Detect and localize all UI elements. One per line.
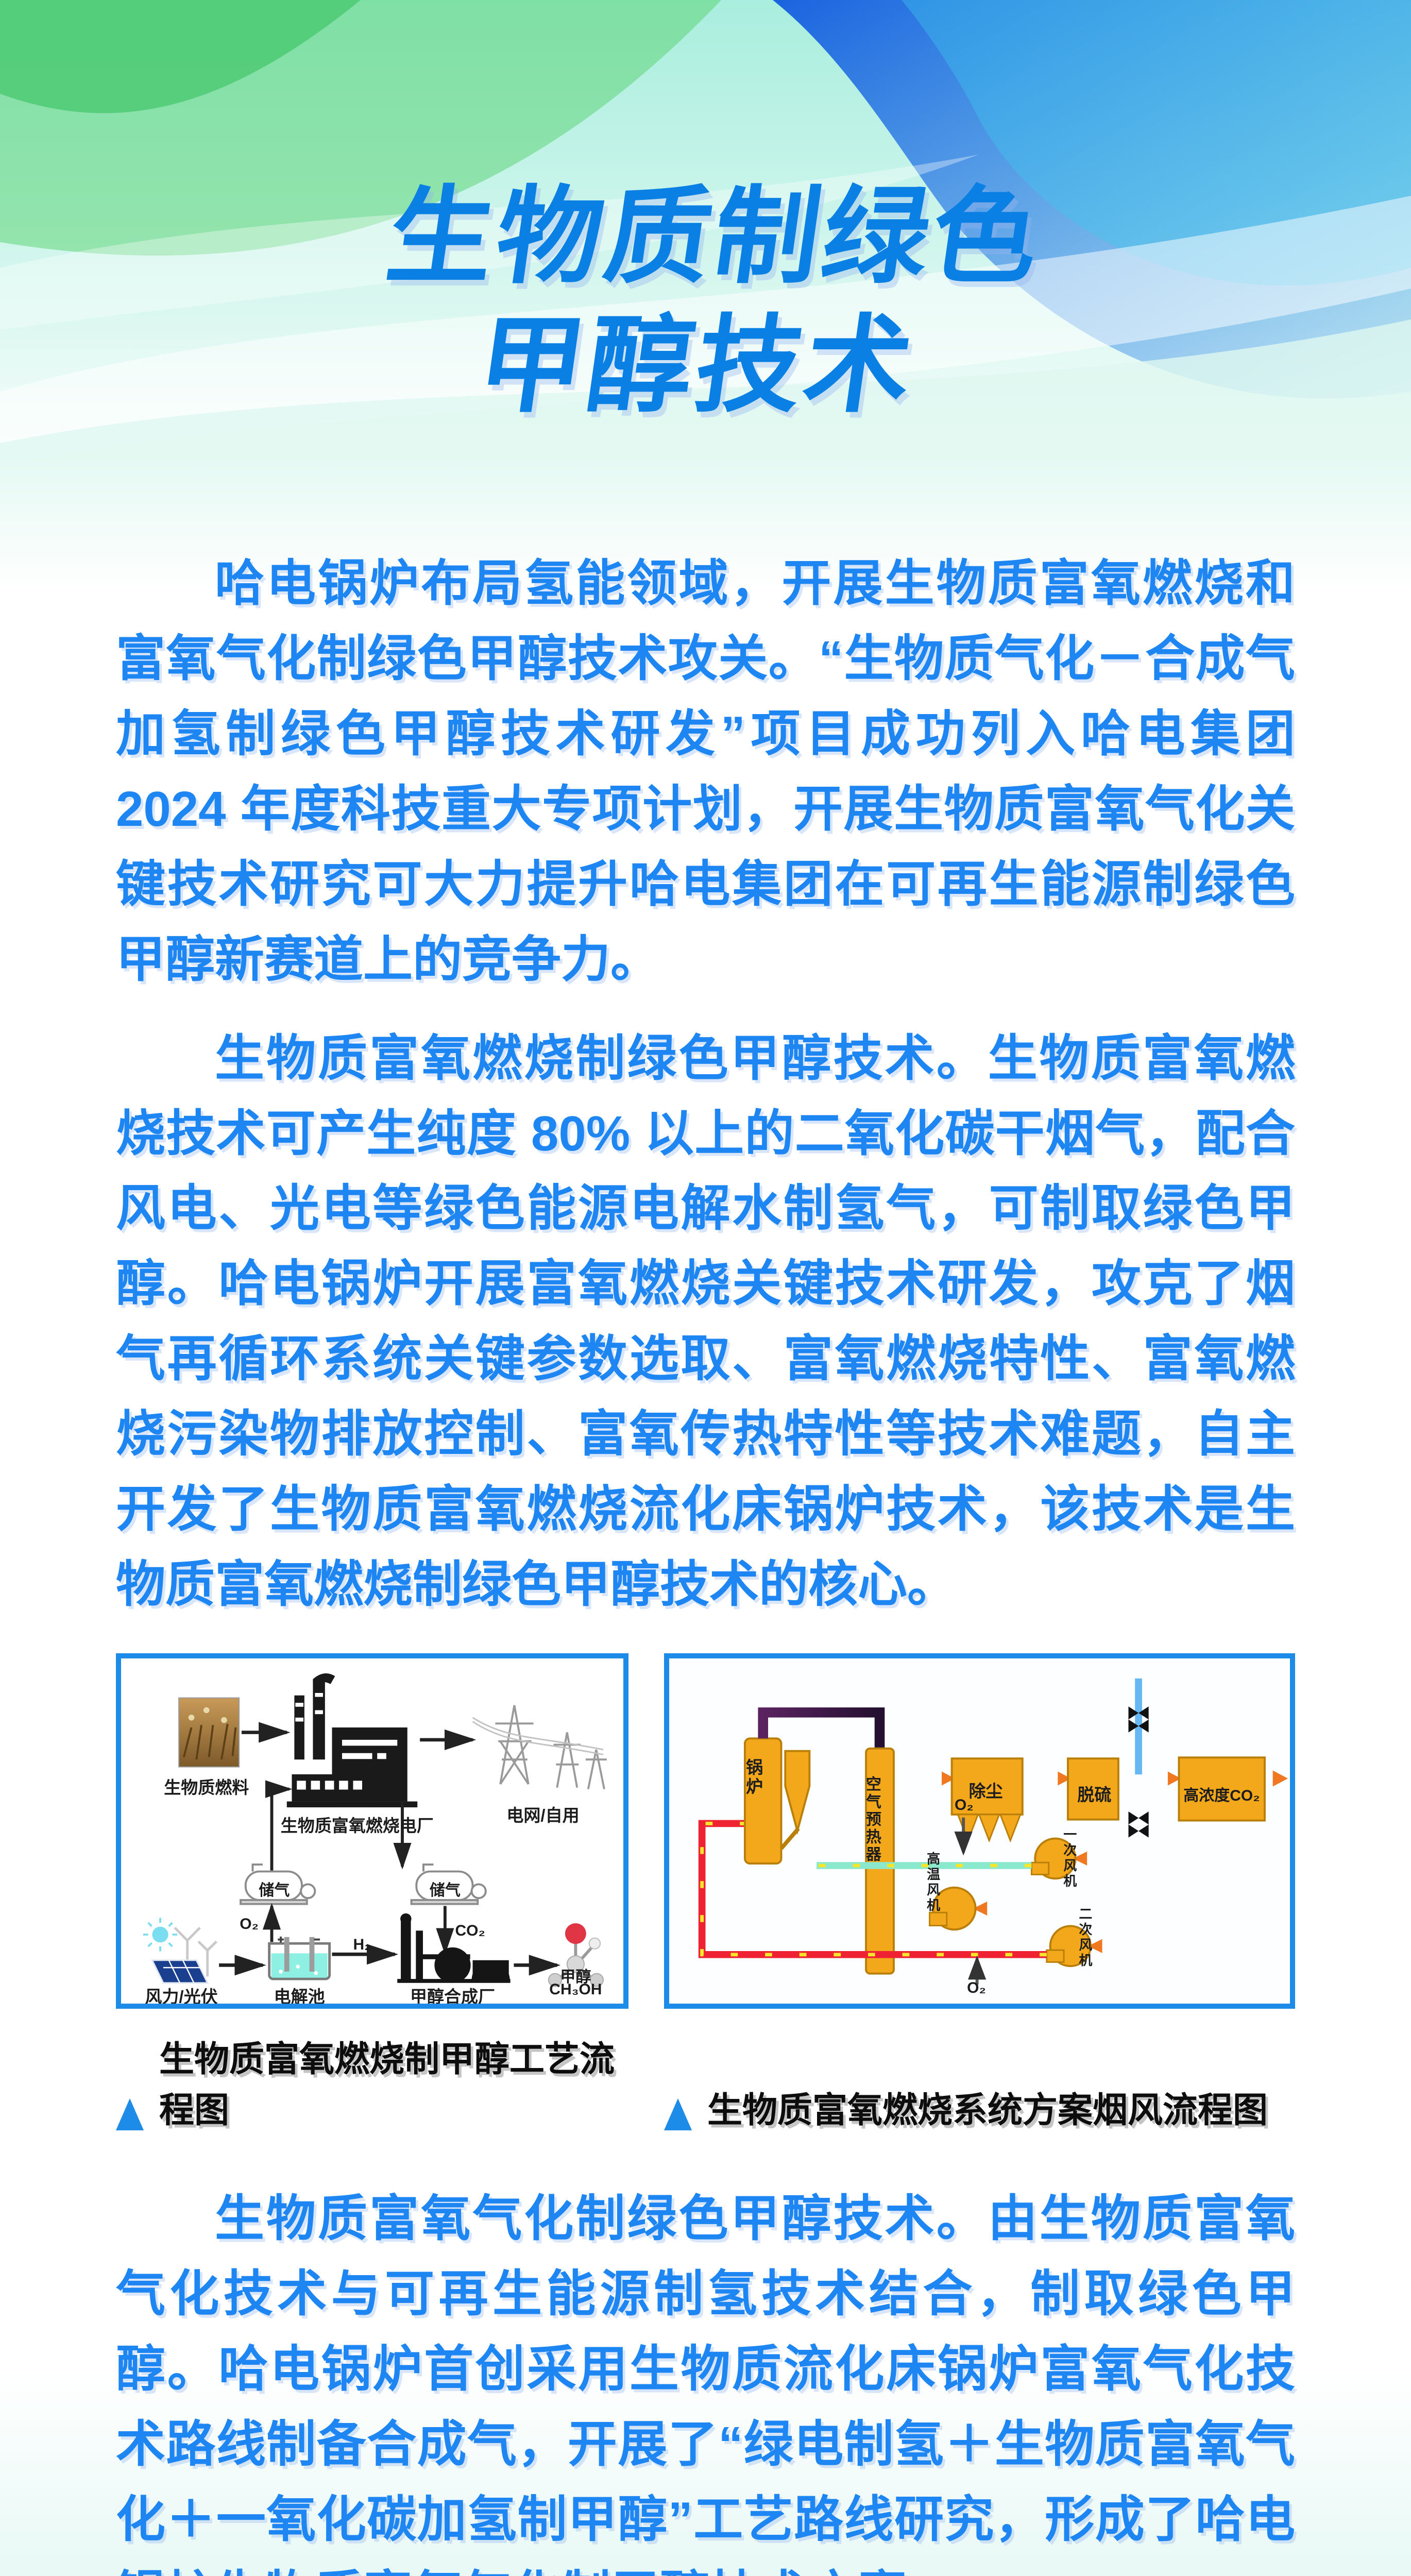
gasification-text-block: 生物质富氧气化制绿色甲醇技术。由生物质富氧气化技术与可再生能源制氢技术结合，制取… bbox=[116, 2181, 1295, 2576]
figure-row-1: 生物质燃料 生物质富氧燃烧电厂 电网/自用 储气 储气 O₂ H₂ CO₂ 风力… bbox=[116, 1653, 1295, 2009]
caption-text: 生物质富氧燃烧系统方案烟风流程图 bbox=[707, 2081, 1268, 2132]
biomass-photo-icon bbox=[179, 1698, 239, 1767]
label-dust: 除尘 bbox=[969, 1777, 1003, 1802]
title-line-2: 甲醇技术 bbox=[0, 301, 1411, 430]
label-plant: 生物质富氧燃烧电厂 bbox=[281, 1812, 434, 1837]
methanol-plant-icon bbox=[397, 1913, 510, 1983]
intro-text-block: 哈电锅炉布局氢能领域，开展生物质富氧燃烧和富氧气化制绿色甲醇技术攻关。“生物质气… bbox=[116, 546, 1295, 1622]
label-boiler: 锅炉 bbox=[741, 1758, 766, 1797]
power-grid-towers-icon bbox=[473, 1705, 607, 1789]
caption-triangle-icon bbox=[116, 2098, 144, 2130]
title-line-1: 生物质制绿色 bbox=[0, 173, 1411, 301]
label-electrolyzer: 电解池 bbox=[274, 1983, 325, 2008]
paragraph-3: 生物质富氧气化制绿色甲醇技术。由生物质富氧气化技术与可再生能源制氢技术结合，制取… bbox=[116, 2181, 1295, 2576]
label-methanol-plant: 甲醇合成厂 bbox=[410, 1983, 495, 2008]
label-fan-primary: 一次风机 bbox=[1060, 1827, 1079, 1889]
label-fan-secondary: 二次风机 bbox=[1076, 1907, 1095, 1969]
label-co2: CO₂ bbox=[455, 1922, 485, 1940]
figure-oxyfuel-methanol-flowchart: 生物质燃料 生物质富氧燃烧电厂 电网/自用 储气 储气 O₂ H₂ CO₂ 风力… bbox=[116, 1653, 628, 2009]
flue-gas-graphic bbox=[669, 1658, 1290, 2004]
label-o2: O₂ bbox=[240, 1916, 259, 1933]
caption-triangle-icon bbox=[664, 2098, 692, 2130]
label-co2-product: 高浓度CO₂ bbox=[1183, 1783, 1260, 1805]
label-o2-bottom: O₂ bbox=[967, 1979, 986, 1997]
wind-solar-icon bbox=[143, 1918, 216, 1982]
page-title: 生物质制绿色 甲醇技术 bbox=[0, 173, 1411, 430]
paragraph-2: 生物质富氧燃烧制绿色甲醇技术。生物质富氧燃烧技术可产生纯度 80% 以上的二氧化… bbox=[116, 1021, 1295, 1622]
paragraph-1: 哈电锅炉布局氢能领域，开展生物质富氧燃烧和富氧气化制绿色甲醇技术攻关。“生物质气… bbox=[116, 546, 1295, 997]
label-fan-ht: 高温风机 bbox=[924, 1852, 943, 1913]
label-o2-top: O₂ bbox=[955, 1797, 974, 1814]
label-h2: H₂ bbox=[353, 1936, 371, 1954]
caption-text: 生物质富氧燃烧制甲醇工艺流程图 bbox=[159, 2030, 628, 2132]
label-ch3oh: CH₃OH bbox=[549, 1981, 602, 1998]
poster-page: 生物质制绿色 甲醇技术 哈电锅炉布局氢能领域，开展生物质富氧燃烧和富氧气化制绿色… bbox=[0, 0, 1411, 2576]
figure-oxyfuel-flue-gas-system: 锅炉 空气预热器 除尘 脱硫 高浓度CO₂ 一次风机 高温风机 二次风机 O₂ … bbox=[664, 1653, 1295, 2009]
boiler-icon bbox=[745, 1738, 809, 1863]
label-preheater: 空气预热器 bbox=[860, 1776, 883, 1863]
caption-fig1-left: 生物质富氧燃烧制甲醇工艺流程图 bbox=[116, 2030, 628, 2132]
electrolyzer-icon bbox=[269, 1937, 330, 1979]
label-gas-left: 储气 bbox=[259, 1877, 290, 1900]
label-wind-pv: 风力/光伏 bbox=[145, 1983, 217, 2008]
caption-row-1: 生物质富氧燃烧制甲醇工艺流程图 生物质富氧燃烧系统方案烟风流程图 bbox=[116, 2030, 1295, 2132]
oxyfuel-power-plant-icon bbox=[287, 1673, 418, 1807]
label-gas-right: 储气 bbox=[430, 1877, 461, 1900]
label-biomass: 生物质燃料 bbox=[164, 1774, 249, 1799]
label-grid: 电网/自用 bbox=[506, 1802, 579, 1826]
label-desulfurize: 脱硫 bbox=[1077, 1781, 1111, 1806]
caption-fig1-right: 生物质富氧燃烧系统方案烟风流程图 bbox=[664, 2030, 1295, 2132]
